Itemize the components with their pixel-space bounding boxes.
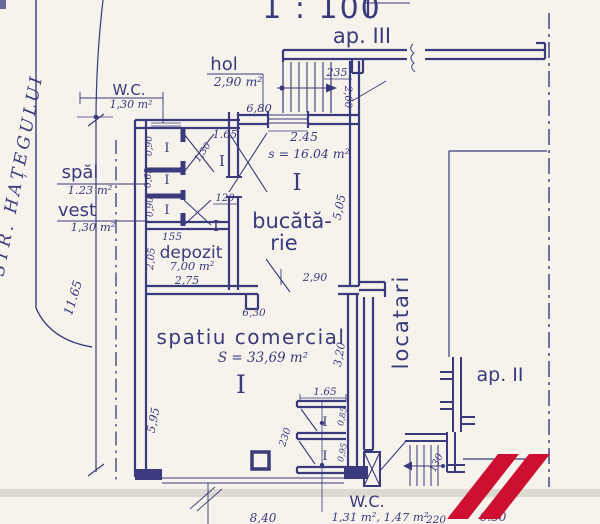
dim-230: 230 (277, 426, 294, 449)
room-mark-spal: I (164, 173, 169, 188)
dim-cell-0-90b: 0,90 (146, 197, 156, 217)
stall-door-leaf-1 (301, 409, 317, 431)
floor-plan-drawing: STR. HAȚEGULUI 11.65 1 : 100 ap. III 2 (0, 0, 600, 524)
room-mark-commercial: I (236, 370, 246, 399)
dim-3-20: 3,20 (331, 341, 348, 367)
scan-artifacts (0, 0, 600, 497)
dim-8-40: 8,40 (250, 511, 277, 524)
room-mark-vest: I (164, 203, 169, 218)
kitchen-label-line2: rie (270, 231, 297, 255)
dim-door-120: 120 (215, 193, 235, 204)
dim-155: 155 (162, 231, 182, 243)
hall-label: hol (210, 54, 237, 75)
dim-5-05: 5,05 (330, 193, 349, 221)
courtyard-lines (449, 151, 547, 459)
wc-bottom-label: W.C. (349, 492, 384, 511)
dim-235: 235 (326, 66, 348, 79)
wc-top-label: W.C. (112, 81, 145, 99)
dim-130: 130 (428, 451, 446, 474)
commercial-label: spatiu comercial (157, 325, 346, 349)
dim-left-11-65: 11.65 (60, 278, 85, 317)
wall-break-mark (411, 44, 415, 72)
wc-top-area: 1,30 m² (110, 98, 153, 111)
dim-2-00: 2,00 (342, 85, 353, 109)
shaft-hatched (364, 441, 406, 486)
kitchen-door-leaf (266, 259, 290, 292)
corridor-door-leaf (379, 441, 406, 472)
depozit-area: 7,00 m² (170, 259, 215, 273)
vest-area: 1,30 m² (71, 220, 116, 234)
column (252, 452, 269, 469)
dim-2-05: 2,05 (145, 247, 158, 271)
wc-bottom-area: 1,31 m², 1,47 m² (332, 510, 429, 524)
spal-label: spăl (62, 162, 99, 183)
street-lines (36, 0, 116, 484)
dim-1-30-diag: 1,30 (192, 141, 213, 165)
dim-220: 220 (425, 514, 446, 524)
apartment2-label: ap. II (477, 364, 524, 386)
apartment3-label: ap. III (333, 24, 391, 48)
stall-door-leaf-2 (299, 441, 315, 464)
room-mark-stall1: I (322, 415, 327, 430)
dim-hall-1-65: 1.65 (213, 128, 238, 141)
room-mark-depozit-door: I (213, 217, 219, 235)
kitchen-area: s = 16.04 m² (268, 146, 349, 161)
dim-6-30: 6,30 (242, 307, 266, 319)
dim-cell-0-65: 0,65 (144, 168, 154, 188)
stairs-down-arrow (403, 462, 412, 471)
scanned-floor-plan: STR. HAȚEGULUI 11.65 1 : 100 ap. III 2 (0, 0, 600, 524)
scale-label: 1 : 100 (262, 0, 382, 26)
commercial-area: S = 33,69 m² (218, 350, 308, 366)
room-mark-wc: I (164, 141, 169, 156)
brand-logo (447, 454, 550, 519)
room-mark-stall2: I (322, 449, 327, 464)
spal-area: 1.23 m² (68, 183, 113, 197)
dim-2-90: 2,90 (302, 271, 328, 284)
street-name-label: STR. HAȚEGULUI (0, 72, 48, 278)
vest-label: vest (58, 200, 96, 221)
room-mark-kitchen: I (292, 170, 301, 196)
dim-cell-0-90a: 0,90 (145, 136, 155, 156)
room-mark-hall: I (219, 152, 225, 170)
dim-wc-1-65: 1.65 (313, 386, 337, 398)
corridor-walls (364, 297, 373, 450)
kitchen-label-line1: bucătă- (252, 209, 332, 233)
hall-area: 2,90 m² (213, 74, 263, 89)
locatari-label: locatari (389, 275, 413, 370)
